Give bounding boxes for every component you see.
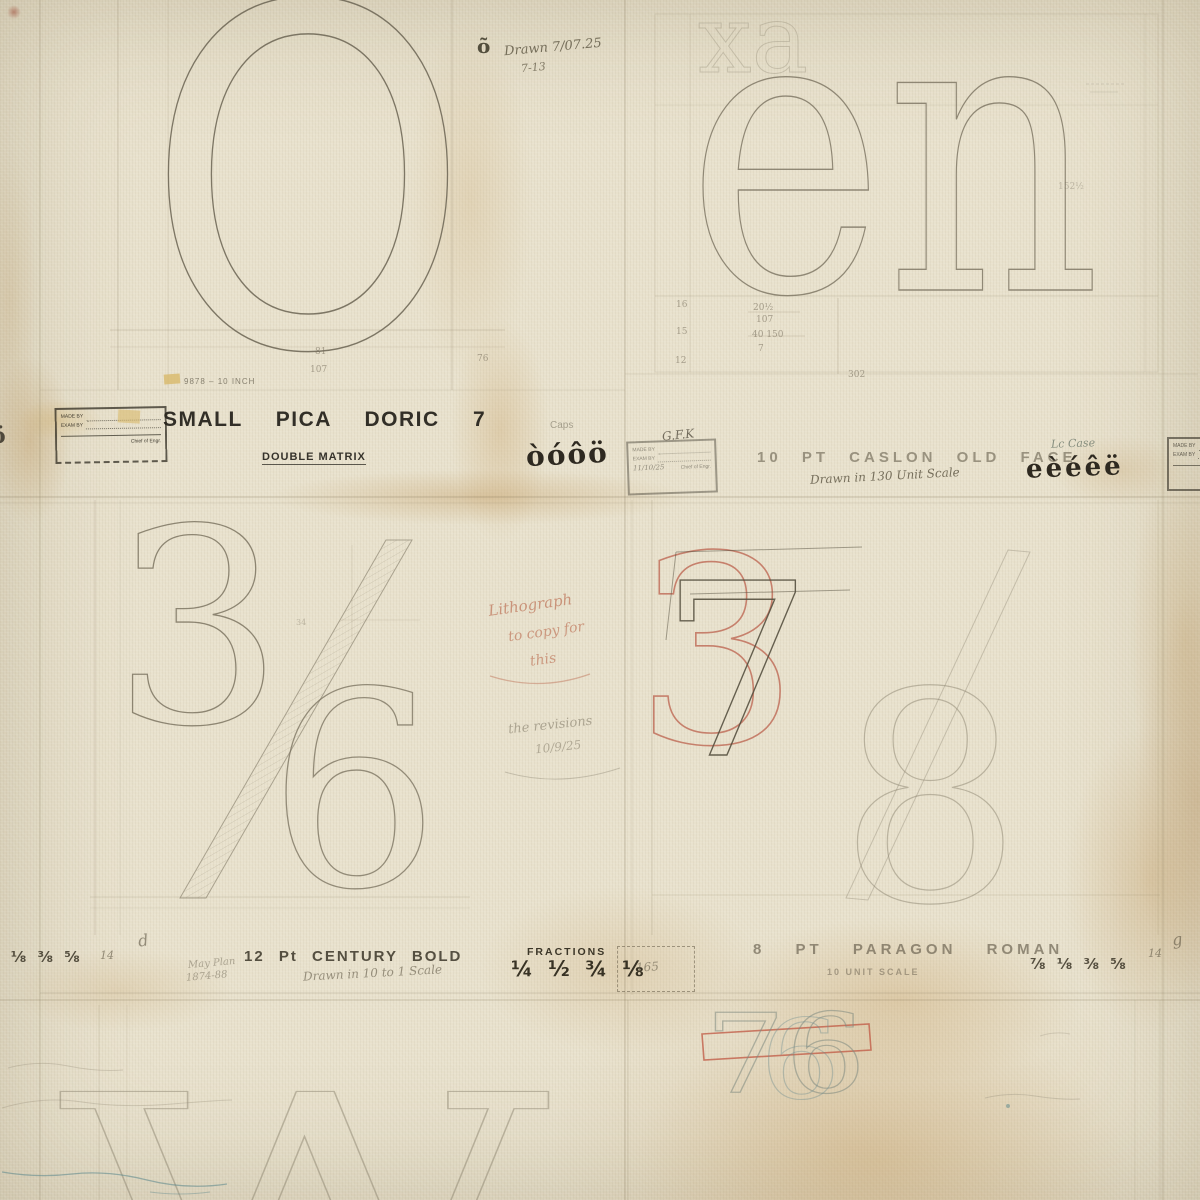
century-tick-34: 34 <box>296 618 306 627</box>
doric-measure-81: 81 <box>315 347 326 357</box>
caslon-tick-16: 16 <box>676 300 687 310</box>
doric-plate-note: 9878 – 10 INCH <box>184 377 255 386</box>
doric-O-outline: O <box>145 0 471 456</box>
corner-fractions-left: ⅞ ⅛ ⅜ ⅝ <box>0 948 83 966</box>
paper-patch <box>164 373 181 384</box>
stamp-made-by-label: MADE BY <box>1173 442 1196 451</box>
corner-number-left: 14 <box>100 949 114 962</box>
caslon-tick-7: 7 <box>758 344 764 354</box>
paragon-title: 8 PT PARAGON ROMAN <box>753 941 1063 958</box>
paragon-scale-note: 10 UNIT SCALE <box>827 967 920 977</box>
number-stamp-box: 165 <box>617 946 695 992</box>
doric-accent-glyphs: òóôö <box>525 436 609 473</box>
century-3-outline: 3 <box>112 471 284 786</box>
doric-subtitle: DOUBLE MATRIX <box>262 451 366 465</box>
doric-measure-76: 76 <box>477 354 488 364</box>
stamp-exam-by-label: EXAM BY <box>1173 451 1195 460</box>
caslon-case-note: Lc Case <box>1051 436 1096 451</box>
caslon-tick-40-150: 40 150 <box>752 330 784 340</box>
doric-title: SMALL PICA DORIC 7 <box>163 408 486 432</box>
inspection-stamp-doric: MADE BY EXAM BY Chief of Engr. <box>55 406 168 464</box>
bottom-W-outline: W <box>58 1025 551 1200</box>
o-annotation-glyph: õ <box>477 34 490 58</box>
caslon-tick-152h: 152½ <box>1058 182 1084 192</box>
stamp-number: 165 <box>635 956 659 978</box>
caslon-tick-107: 107 <box>756 315 773 325</box>
corner-fractions-right: ⅞ ⅛ ⅜ ⅝ <box>1030 955 1129 973</box>
doric-edge-glyph: ö <box>0 423 6 449</box>
stamp-chief-label: Chief of Engr. <box>681 462 712 472</box>
bottom-6-overlay-sketch: 6 <box>760 996 840 1124</box>
stamp-date: 11/10/25 <box>633 462 665 475</box>
doric-caps-note: Caps <box>550 420 573 431</box>
caslon-tick-12: 12 <box>675 356 686 366</box>
paragon-8-outline: 8 <box>838 632 1023 969</box>
stamp-paper-patch <box>118 409 141 423</box>
photo-of-type-drawings: O xa en 3 6 3 7 8 W 76 6 <box>0 0 1200 1200</box>
paragon-black-7-outline: 7 <box>660 532 813 812</box>
century-6-outline: 6 <box>268 634 440 949</box>
corner-number-right: 14 <box>1148 947 1162 960</box>
caslon-en-outline: en <box>686 0 1101 385</box>
caslon-tick-302: 302 <box>848 370 865 380</box>
drawing-layer: O xa en 3 6 3 7 8 W 76 6 <box>0 0 1200 1200</box>
caslon-tick-20h: 20½ <box>753 303 773 313</box>
o-annotation-2: 7-13 <box>520 60 546 75</box>
inspection-stamp-caslon: MADE BY EXAM BY 11/10/25 Chief of Engr. <box>626 438 718 495</box>
doric-measure-107: 107 <box>310 365 327 375</box>
caslon-accent-glyphs: eèéêë <box>1026 451 1125 484</box>
inspection-stamp-right-edge: MADE BY EXAM BY <box>1167 437 1200 491</box>
caslon-tick-15: 15 <box>676 327 687 337</box>
stamp-chief-label: Chief of Engr. <box>61 437 161 447</box>
